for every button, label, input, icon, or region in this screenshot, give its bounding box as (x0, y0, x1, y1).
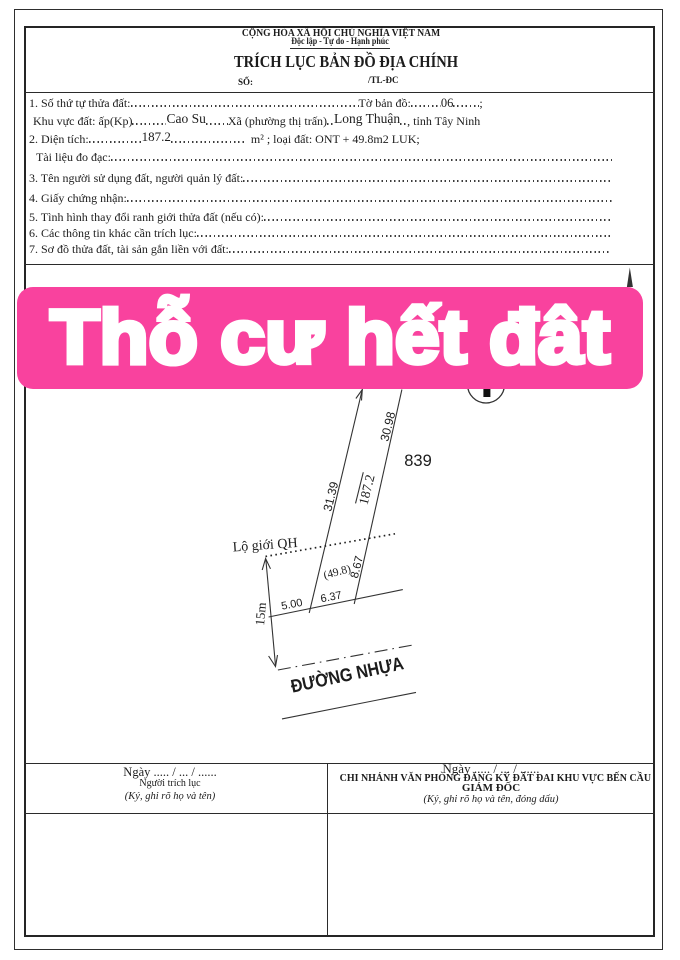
svg-text:839: 839 (404, 452, 432, 470)
svg-text:8.67: 8.67 (349, 555, 366, 580)
svg-text:Lộ giới QH: Lộ giới QH (232, 536, 298, 555)
svg-text:31.39: 31.39 (320, 480, 341, 513)
svg-text:15m: 15m (252, 602, 269, 626)
svg-text:30.98: 30.98 (377, 410, 398, 443)
svg-text:ĐƯỜNG NHỰA: ĐƯỜNG NHỰA (289, 652, 406, 697)
svg-text:(49.8): (49.8) (322, 563, 352, 582)
